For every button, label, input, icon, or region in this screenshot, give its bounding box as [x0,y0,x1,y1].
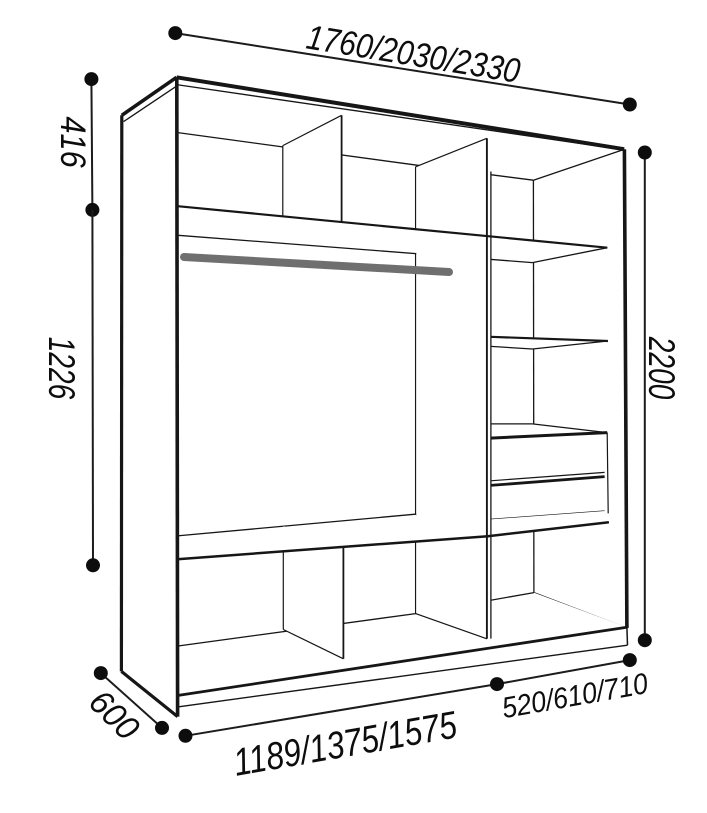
svg-text:1226: 1226 [41,337,83,400]
svg-text:416: 416 [54,116,93,168]
svg-text:2200: 2200 [641,336,683,399]
